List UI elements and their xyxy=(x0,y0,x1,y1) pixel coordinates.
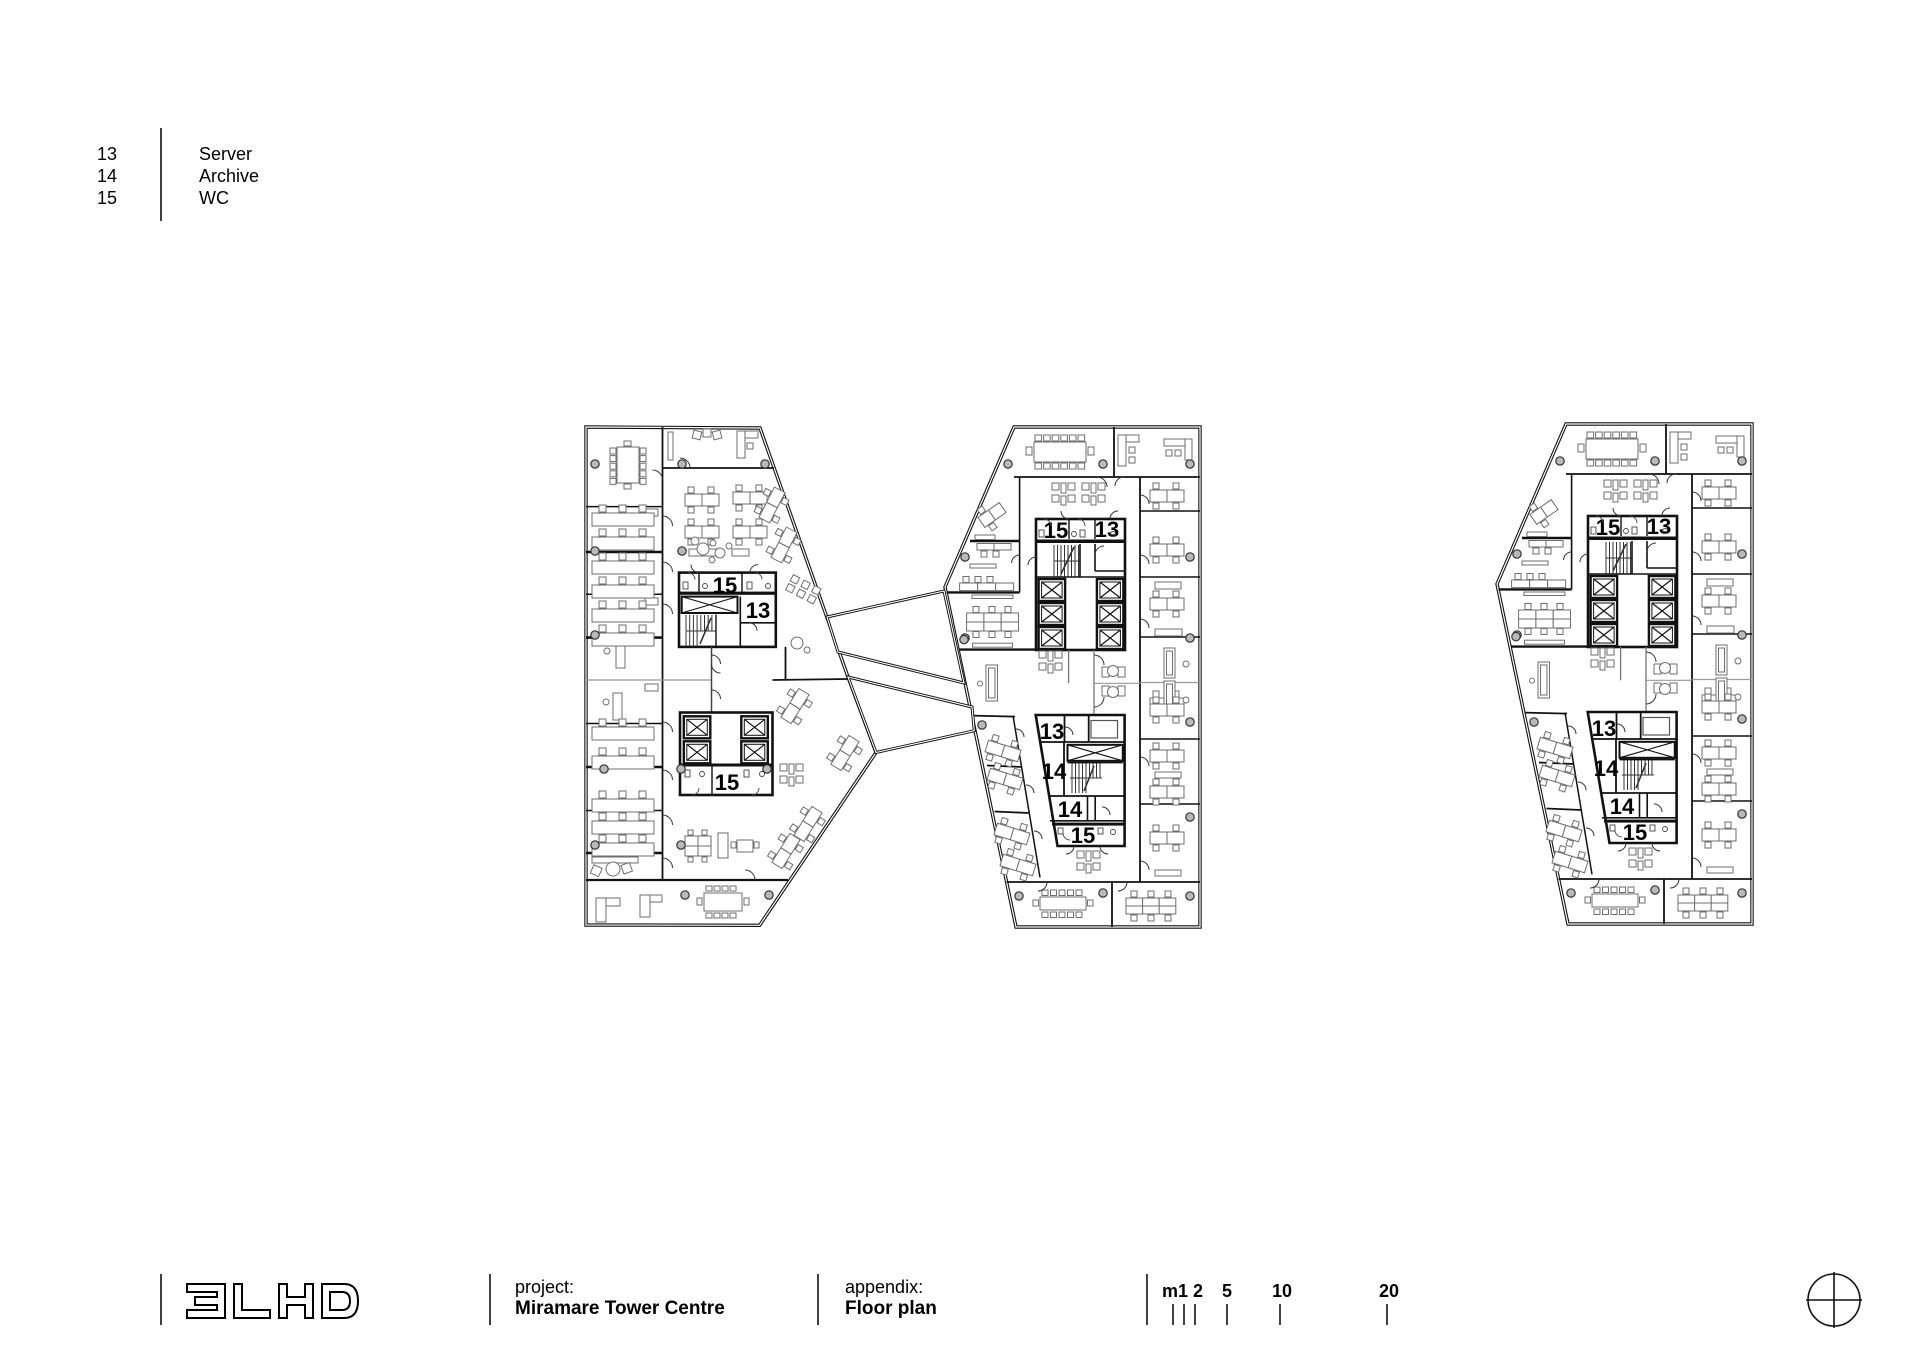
svg-text:20: 20 xyxy=(1379,1281,1399,1301)
svg-text:Server: Server xyxy=(199,144,252,164)
svg-text:Floor plan: Floor plan xyxy=(845,1298,937,1319)
svg-text:15: 15 xyxy=(713,573,737,598)
svg-text:Miramare Tower Centre: Miramare Tower Centre xyxy=(515,1298,725,1319)
svg-text:m1 2: m1 2 xyxy=(1162,1281,1203,1301)
svg-text:WC: WC xyxy=(199,188,229,208)
svg-text:14: 14 xyxy=(97,166,117,186)
svg-text:5: 5 xyxy=(1222,1281,1232,1301)
svg-text:project:: project: xyxy=(515,1277,574,1297)
svg-text:13: 13 xyxy=(97,144,117,164)
svg-text:15: 15 xyxy=(97,188,117,208)
svg-text:10: 10 xyxy=(1272,1281,1292,1301)
svg-text:15: 15 xyxy=(715,770,739,795)
svg-text:appendix:: appendix: xyxy=(845,1277,923,1297)
svg-text:Archive: Archive xyxy=(199,166,259,186)
svg-text:13: 13 xyxy=(746,598,770,623)
